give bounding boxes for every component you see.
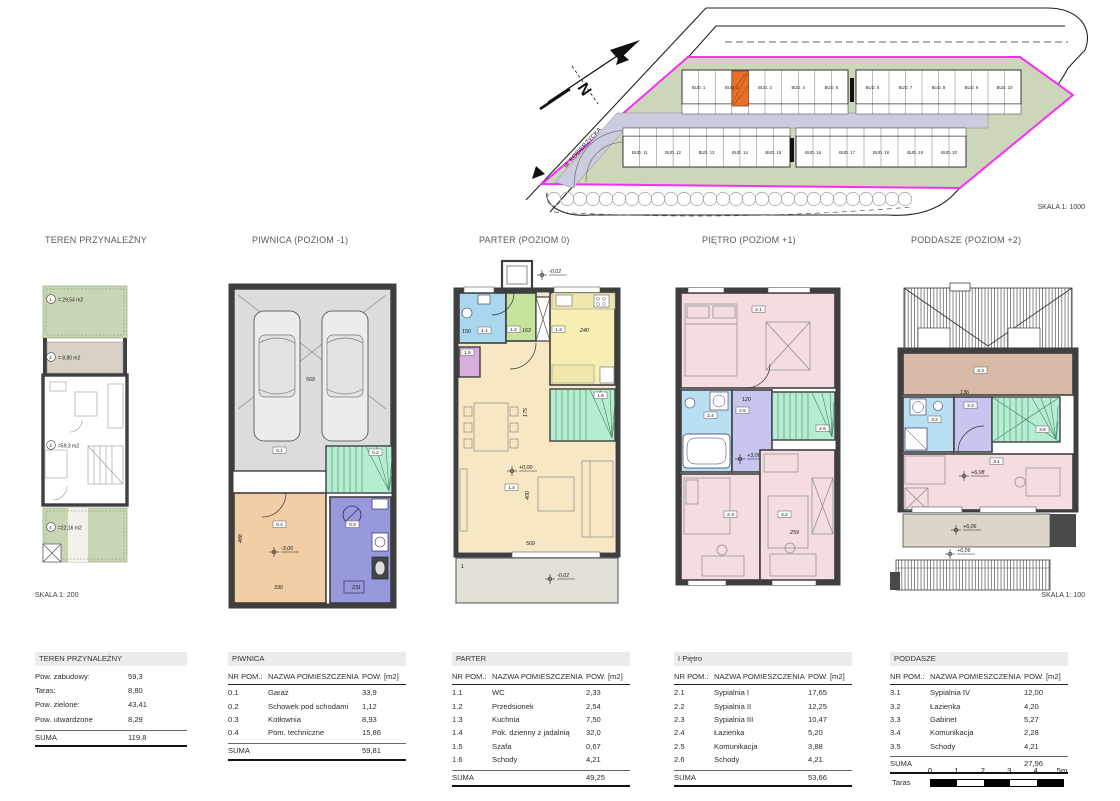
cell-name: Komunikacja (930, 728, 1024, 739)
table-row: 1.3 Kuchnia 7,50 (452, 714, 630, 727)
cell-nr: 1.3 (452, 715, 492, 726)
scale-segment (1037, 780, 1063, 786)
cell-nr: 1.2 (452, 702, 492, 713)
suma-label: SUMA (674, 773, 714, 784)
room-wc: 1.1 150 (459, 293, 506, 343)
building-label: BUD. 10 (997, 85, 1013, 90)
dim-400: 400 (525, 491, 531, 500)
room-number: 1.4 (508, 485, 515, 491)
table-row: 1.2 Przedsionek 2,54 (452, 700, 630, 713)
room-number: 2.6 (819, 426, 826, 432)
cell-nr: 1.5 (452, 742, 492, 753)
cell-area: 15,86 (362, 728, 406, 739)
cell-area: 4,21 (586, 755, 630, 766)
room-number: 1.2 (510, 327, 517, 333)
cell-nr: 3.4 (890, 728, 930, 739)
zone4-number: 4. (49, 525, 53, 530)
table-row: 1.1 WC 2,33 (452, 687, 630, 700)
terrace: 1 -0,02 (456, 558, 618, 603)
spacer (268, 746, 362, 757)
col-header-nr: NR POM.: (890, 672, 930, 683)
scale-tick: 3 (1007, 766, 1011, 775)
cell-area: 12,25 (808, 702, 852, 713)
level-mark-entry: -0,02 (537, 269, 567, 280)
col-header-area: POW. [m2] (586, 672, 630, 683)
room-wardrobe: 1.5 (459, 347, 480, 377)
table-row: 1.5 Szafa 0,67 (452, 740, 630, 753)
block-gap (850, 78, 854, 102)
table-row: Pow. zielone: 43,41 (35, 699, 187, 713)
cell-nr: 1.1 (452, 688, 492, 699)
cell-nr: 0.1 (228, 688, 268, 699)
room-number: 3.1 (993, 459, 1000, 465)
cell-label: Pow. zielone: (35, 700, 128, 711)
dim-150: 150 (462, 329, 471, 335)
cell-area: 2,28 (1024, 728, 1068, 739)
table-row: 1.6 Schody 4,21 (452, 753, 630, 766)
cell-name: Schody (492, 755, 586, 766)
column-title-parter: PARTER (POZIOM 0) (479, 235, 570, 245)
cell-area: 33,9 (362, 688, 406, 699)
building-label: BUD. 2 (725, 85, 739, 90)
table-row: 2.2 Sypialnia II 12,25 (674, 700, 852, 713)
site-plan: BUD. 1 BUD. 2 BUD. 3 BUD. 4 BUD. 5 BUD. … (520, 0, 1120, 230)
cell-name: Schody (930, 742, 1024, 753)
room-number: 1.1 (481, 328, 488, 334)
cell-area: 2,54 (586, 702, 630, 713)
trees-row (547, 192, 911, 205)
cell-nr: 0.2 (228, 702, 268, 713)
table-row: 3.3 Gabinet 5,27 (890, 714, 1068, 727)
cell-area: 4,21 (1024, 742, 1068, 753)
stairs-first-floor: 2.6 (772, 392, 835, 440)
svg-text:+6,06: +6,06 (957, 548, 970, 554)
room-number: 1.3 (555, 327, 562, 333)
dim-231: 231 (351, 585, 361, 591)
dim-175: 175 (523, 408, 529, 417)
cell-name: Schody (714, 755, 808, 766)
building-label: BUD. 17 (839, 150, 855, 155)
building-label: BUD. 20 (941, 150, 957, 155)
teren-plan: 1. = 29,54 m2 2. = 8,80 m2 3. =59,3 m2 4… (30, 280, 150, 570)
table-row: Taras: 8,80 (35, 685, 187, 699)
room-number: 0.1 (276, 448, 283, 454)
svg-text:-0,02: -0,02 (549, 269, 561, 275)
table-title: I Piętro (674, 652, 852, 666)
dim-569: 569 (526, 541, 535, 547)
dim-163: 163 (522, 328, 531, 334)
dim-136: 136 (960, 390, 969, 396)
building-label: BUD. 6 (866, 85, 880, 90)
col-header-nr: NR POM.: (674, 672, 714, 683)
cell-label: Pow. utwardzone (35, 715, 128, 726)
stairs-ground: 1.6 (550, 389, 615, 441)
building-label: BUD. 12 (665, 150, 681, 155)
building-label: BUD. 19 (907, 150, 923, 155)
room-bathroom: 2.4 (681, 390, 732, 472)
extra-label: Taras (892, 778, 932, 789)
cell-value: 43,41 (128, 700, 147, 711)
north-arrow-icon: N (540, 40, 640, 109)
cell-name: Łazienka (930, 702, 1024, 713)
zone-garden-front (43, 286, 127, 338)
cell-area: 2,33 (586, 688, 630, 699)
cell-name: Sypialnia II (714, 702, 808, 713)
terrace-mark: 1 (461, 564, 464, 570)
table-suma-row: SUMA 119,8 (35, 730, 187, 748)
table-row: Pow. zabudowy: 59,3 (35, 671, 187, 685)
table-row: 2.3 Sypialnia III 10,47 (674, 714, 852, 727)
block-gap (790, 138, 794, 162)
cell-nr: 2.2 (674, 702, 714, 713)
chimney (502, 261, 532, 289)
suma-value: 53,66 (808, 773, 852, 784)
table-row: 0.3 Kotłownia 8,93 (228, 714, 406, 727)
cell-area: 4,21 (808, 755, 852, 766)
dim-488: 488 (238, 534, 244, 543)
cell-name: Sypialnia IV (930, 688, 1024, 699)
roof-bottom: +6,06 (890, 548, 1050, 590)
car-icon (322, 311, 368, 441)
roof-top (904, 283, 1072, 348)
cell-value: 8,29 (128, 715, 143, 726)
room-number: 3.3 (977, 368, 984, 374)
cell-area: 7,50 (586, 715, 630, 726)
suma-value: 119,8 (128, 733, 146, 744)
dim-120: 120 (742, 397, 751, 403)
col-header-nr: NR POM.: (452, 672, 492, 683)
table-row: 2.4 Łazienka 5,20 (674, 727, 852, 740)
room-number: 2.2 (781, 512, 788, 518)
cell-area: 3,88 (808, 742, 852, 753)
table-suma-row: SUMA 59,81 (228, 743, 406, 761)
table-suma-row: SUMA 49,25 (452, 770, 630, 788)
room-kitchen: 1.3 240 (550, 293, 615, 385)
cell-nr: 3.5 (890, 742, 930, 753)
cell-area: 8,93 (362, 715, 406, 726)
cell-nr: 0.4 (228, 728, 268, 739)
zone2-area: = 8,80 m2 (58, 356, 81, 362)
poddasze-scale-label: SKALA 1: 100 (985, 592, 1085, 599)
table-row: 1.4 Pok. dzienny z jadalnią 32,0 (452, 727, 630, 740)
suma-label: SUMA (452, 773, 492, 784)
building-label: BUD. 16 (805, 150, 821, 155)
room-bedroom2: 2.2 259 (760, 450, 835, 580)
room-number: 1.5 (464, 350, 471, 356)
room-bedroom4: 3.1 +6,08 (903, 454, 1073, 510)
table-row: 0.2 Schowek pod schodami 1,12 (228, 700, 406, 713)
suma-label: SUMA (35, 733, 128, 744)
cell-name: Garaż (268, 688, 362, 699)
room-garage: 569 0.1 (234, 289, 391, 471)
table-header: NR POM.: NAZWA POMIESZCZENIA POW. [m2] (674, 671, 852, 686)
column-title-teren: TEREN PRZYNALEŻNY (45, 235, 147, 245)
scale-tick: 1 (954, 766, 958, 775)
dim-569: 569 (306, 377, 315, 383)
suma-value: 49,25 (586, 773, 630, 784)
teren-table: TEREN PRZYNALEŻNY Pow. zabudowy: 59,3 Ta… (35, 652, 187, 747)
pietro-plan: 2.1 2.4 120 2.5 +3,06 (672, 282, 844, 596)
col-header-name: NAZWA POMIESZCZENIA (714, 672, 808, 683)
piwnica-table: PIWNICA NR POM.: NAZWA POMIESZCZENIA POW… (228, 652, 406, 761)
stairs-basement: 0.2 (326, 446, 392, 493)
scale-segment (1010, 780, 1036, 786)
svg-text:+6,06: +6,06 (963, 524, 976, 530)
scale-segment (931, 780, 957, 786)
cell-area: 5,27 (1024, 715, 1068, 726)
room-bathroom: 3.2 (903, 397, 954, 452)
col-header-name: NAZWA POMIESZCZENIA (492, 672, 586, 683)
cell-name: Kotłownia (268, 715, 362, 726)
poddasze-plan: 3.3 3.2 136 3.4 (888, 282, 1092, 612)
dim-259: 259 (789, 530, 799, 536)
cell-area: 4,20 (1024, 702, 1068, 713)
cell-label: Pow. zabudowy: (35, 672, 128, 683)
street-arrow-icon (532, 166, 545, 179)
cell-name: Łazienka (714, 728, 808, 739)
dim-240: 240 (579, 328, 589, 334)
zone1-area: = 29,54 m2 (58, 298, 83, 304)
zone1-number: 1. (49, 297, 53, 302)
table-header: NR POM.: NAZWA POMIESZCZENIA POW. [m2] (228, 671, 406, 686)
room-corridor: 136 3.4 (954, 390, 992, 452)
suma-label: SUMA (890, 759, 930, 770)
building-label: BUD. 4 (791, 85, 805, 90)
cell-area: 32,0 (586, 728, 630, 739)
building-label: BUD. 1 (692, 85, 706, 90)
scale-segment (984, 780, 1010, 786)
cell-area: 5,20 (808, 728, 852, 739)
building-label: BUD. 18 (873, 150, 889, 155)
col-header-area: POW. [m2] (808, 672, 852, 683)
room-number: 3.2 (931, 417, 938, 423)
scale-segment (957, 780, 983, 786)
room-bedroom3: 2.3 (681, 474, 760, 580)
suma-label: SUMA (228, 746, 268, 757)
cell-name: Schowek pod schodami (268, 702, 362, 713)
cell-area: 17,65 (808, 688, 852, 699)
table-row: Pow. utwardzone 8,29 (35, 713, 187, 727)
zone2-number: 2. (49, 355, 53, 360)
chimney (950, 283, 970, 291)
cell-area: 0,67 (586, 742, 630, 753)
table-row: 3.2 Łazienka 4,20 (890, 700, 1068, 713)
zone4-area: =22,16 m2 (58, 526, 82, 532)
table-header: NR POM.: NAZWA POMIESZCZENIA POW. [m2] (452, 671, 630, 686)
parter-plan: -0,02 1.1 150 1.2 163 (450, 255, 626, 605)
scale-tick: 0 (928, 766, 932, 775)
table-title: TEREN PRZYNALEŻNY (35, 652, 187, 666)
cell-nr: 3.1 (890, 688, 930, 699)
table-row: 3.4 Komunikacja 2,28 (890, 727, 1068, 740)
scale-tick: 4 (1034, 766, 1038, 775)
piwnica-plan: 569 0.1 0.2 0.4 (226, 281, 402, 611)
building-label: BUD. 9 (965, 85, 979, 90)
col-header-name: NAZWA POMIESZCZENIA (268, 672, 362, 683)
col-header-area: POW. [m2] (362, 672, 406, 683)
cell-label: Taras: (35, 686, 128, 697)
building-label: BUD. 7 (899, 85, 913, 90)
table-row: 3.5 Schody 4,21 (890, 740, 1068, 753)
building-label: BUD. 15 (765, 150, 781, 155)
cell-name: WC (492, 688, 586, 699)
col-header-area: POW. [m2] (1024, 672, 1068, 683)
cell-name: Komunikacja (714, 742, 808, 753)
cell-name: Kuchnia (492, 715, 586, 726)
cell-nr: 3.3 (890, 715, 930, 726)
table-row: 2.1 Sypialnia I 17,65 (674, 687, 852, 700)
cell-name: Pom. techniczne (268, 728, 362, 739)
site-scale-label: SKALA 1: 1000 (985, 204, 1085, 211)
table-title: PARTER (452, 652, 630, 666)
cell-nr: 1.4 (452, 728, 492, 739)
scale-tick: 5m (1057, 766, 1067, 775)
car-icon (254, 311, 300, 441)
building-label: BUD. 14 (732, 150, 748, 155)
svg-text:-3,06: -3,06 (281, 546, 293, 552)
cell-value: 59,3 (128, 672, 143, 683)
building-label: BUD. 3 (758, 85, 772, 90)
cell-nr: 2.3 (674, 715, 714, 726)
building-label: BUD. 5 (825, 85, 839, 90)
room-number: 2.3 (727, 512, 734, 518)
room-bedroom1: 2.1 (681, 293, 835, 388)
room-number: 1.6 (597, 393, 604, 399)
column-title-poddasze: PODDASZE (POZIOM +2) (911, 235, 1021, 245)
building-label: BUD. 11 (632, 150, 648, 155)
cell-area: 1,12 (362, 702, 406, 713)
cell-value: 8,80 (128, 686, 143, 697)
house-outline (43, 375, 127, 505)
room-number: 0.4 (276, 522, 283, 528)
pietro-table: I Piętro NR POM.: NAZWA POMIESZCZENIA PO… (674, 652, 852, 787)
floor-plan-sheet: BUD. 1 BUD. 2 BUD. 3 BUD. 4 BUD. 5 BUD. … (0, 0, 1120, 801)
table-row: 0.1 Garaż 33,9 (228, 687, 406, 700)
cell-area: 10,47 (808, 715, 852, 726)
cell-area: 12,00 (1024, 688, 1068, 699)
room-number: 3.4 (967, 403, 974, 409)
cell-nr: 1.6 (452, 755, 492, 766)
column-title-piwnica: PIWNICA (POZIOM -1) (252, 235, 348, 245)
room-technical: 0.4 -3,06 488 330 (234, 493, 326, 603)
room-number: 0.2 (372, 450, 379, 456)
teren-scale-label: SKALA 1: 200 (35, 592, 79, 599)
cell-nr: 2.6 (674, 755, 714, 766)
closet (536, 297, 550, 341)
cell-nr: 2.5 (674, 742, 714, 753)
cell-name: Szafa (492, 742, 586, 753)
scale-bar: 0 1 2 3 4 5m (930, 766, 1070, 794)
terrace: +6,06 (903, 514, 1076, 547)
cell-name: Sypialnia I (714, 688, 808, 699)
table-row: 2.6 Schody 4,21 (674, 753, 852, 766)
cell-name: Przedsionek (492, 702, 586, 713)
room-number: 3.5 (1039, 427, 1046, 433)
spacer (714, 773, 808, 784)
suma-value: 59,81 (362, 746, 406, 757)
zone-garden-back (43, 508, 127, 562)
cell-nr: 3.2 (890, 702, 930, 713)
table-title: PODDASZE (890, 652, 1068, 666)
cell-nr: 0.3 (228, 715, 268, 726)
building-label: BUD. 8 (932, 85, 946, 90)
dim-330: 330 (274, 585, 283, 591)
room-boiler: 0.3 231 (330, 497, 391, 603)
cell-nr: 2.4 (674, 728, 714, 739)
room-number: 2.5 (739, 408, 746, 414)
stairs-attic: 3.5 (992, 397, 1060, 442)
table-row: 2.5 Komunikacja 3,88 (674, 740, 852, 753)
building-label: BUD. 13 (699, 150, 715, 155)
spacer (492, 773, 586, 784)
table-header: NR POM.: NAZWA POMIESZCZENIA POW. [m2] (890, 671, 1068, 686)
svg-text:-0,02: -0,02 (557, 573, 569, 579)
svg-text:+0,00: +0,00 (519, 465, 532, 471)
cell-name: Sypialnia III (714, 715, 808, 726)
room-office: 3.3 (903, 353, 1073, 395)
room-number: 2.1 (755, 307, 762, 313)
cell-name: Pok. dzienny z jadalnią (492, 728, 586, 739)
col-header-nr: NR POM.: (228, 672, 268, 683)
zone3-area: =59,3 m2 (58, 444, 79, 450)
parter-table: PARTER NR POM.: NAZWA POMIESZCZENIA POW.… (452, 652, 630, 787)
level-mark-lower: +6,06 (945, 548, 975, 559)
scale-tick: 2 (981, 766, 985, 775)
table-row: 3.1 Sypialnia IV 12,00 (890, 687, 1068, 700)
cell-name: Gabinet (930, 715, 1024, 726)
svg-text:+3,06: +3,06 (747, 453, 760, 459)
table-suma-row: SUMA 53,66 (674, 770, 852, 788)
zone3-number: 3. (49, 443, 53, 448)
room-number: 0.3 (349, 522, 356, 528)
scale-bar-strip (930, 779, 1064, 787)
col-header-name: NAZWA POMIESZCZENIA (930, 672, 1024, 683)
column-title-pietro: PIĘTRO (POZIOM +1) (702, 235, 796, 245)
room-number: 2.4 (707, 413, 714, 419)
table-title: PIWNICA (228, 652, 406, 666)
table-row: 0.4 Pom. techniczne 15,86 (228, 727, 406, 740)
svg-text:+6,08: +6,08 (971, 470, 984, 476)
cell-nr: 2.1 (674, 688, 714, 699)
